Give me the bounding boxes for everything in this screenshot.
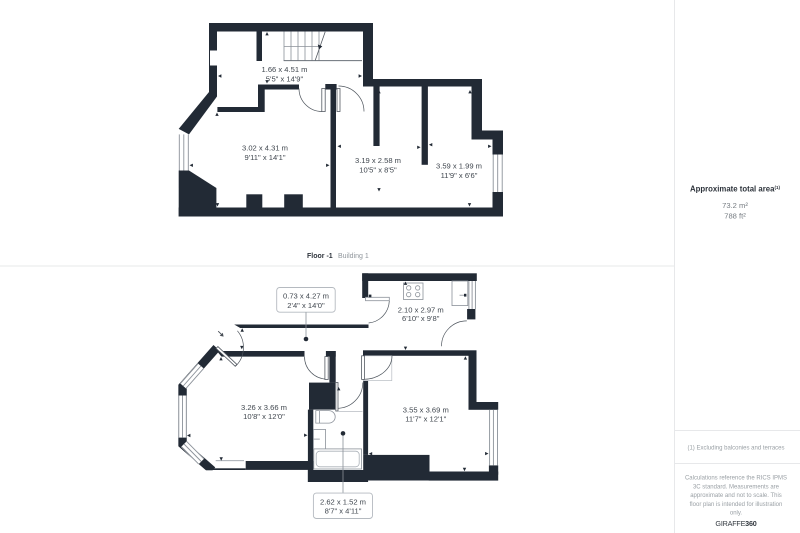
svg-text:2'4" x 14'0": 2'4" x 14'0": [287, 301, 325, 310]
svg-text:6'10" x 9'8": 6'10" x 9'8": [402, 314, 440, 323]
svg-text:2.62 x 1.52 m: 2.62 x 1.52 m: [320, 497, 366, 506]
svg-text:1.66 x 4.51 m: 1.66 x 4.51 m: [261, 65, 307, 74]
svg-text:5'5" x 14'9": 5'5" x 14'9": [266, 74, 304, 83]
svg-text:Floor -1: Floor -1: [307, 253, 333, 260]
svg-text:floor plan is intended for ill: floor plan is intended for illustration: [690, 502, 783, 508]
svg-text:approximate and not to scale.: approximate and not to scale. This: [690, 493, 782, 499]
svg-text:Calculations reference the RIC: Calculations reference the RICS IPMS: [685, 476, 787, 482]
svg-text:3.55 x 3.69 m: 3.55 x 3.69 m: [403, 406, 449, 415]
svg-text:11'9" x 6'6": 11'9" x 6'6": [441, 171, 478, 180]
svg-text:11'7" x 12'1": 11'7" x 12'1": [405, 415, 446, 424]
svg-text:3C standard. Measurements are: 3C standard. Measurements are: [693, 484, 780, 490]
svg-text:10'8" x 12'0": 10'8" x 12'0": [243, 412, 285, 421]
svg-text:3.02 x 4.31 m: 3.02 x 4.31 m: [242, 144, 288, 153]
svg-text:(1) Excluding balconies and te: (1) Excluding balconies and terraces: [687, 445, 784, 451]
svg-text:Building 1: Building 1: [338, 253, 369, 260]
svg-text:3.19 x 2.58 m: 3.19 x 2.58 m: [355, 156, 401, 165]
svg-text:3.59 x 1.99 m: 3.59 x 1.99 m: [436, 162, 482, 171]
svg-text:9'11" x 14'1": 9'11" x 14'1": [244, 153, 285, 162]
svg-text:0.73 x 4.27 m: 0.73 x 4.27 m: [283, 292, 329, 301]
svg-text:Approximate total area(1): Approximate total area(1): [690, 185, 781, 194]
svg-text:only.: only.: [730, 511, 743, 517]
svg-text:73.2 m²: 73.2 m²: [722, 201, 748, 210]
svg-text:8'7" x 4'11": 8'7" x 4'11": [325, 507, 362, 516]
svg-text:3.26 x 3.66 m: 3.26 x 3.66 m: [241, 403, 287, 412]
svg-text:GIRAFFE360: GIRAFFE360: [715, 519, 756, 528]
svg-text:10'5" x 8'5": 10'5" x 8'5": [359, 165, 397, 174]
svg-text:788 ft²: 788 ft²: [724, 211, 746, 220]
